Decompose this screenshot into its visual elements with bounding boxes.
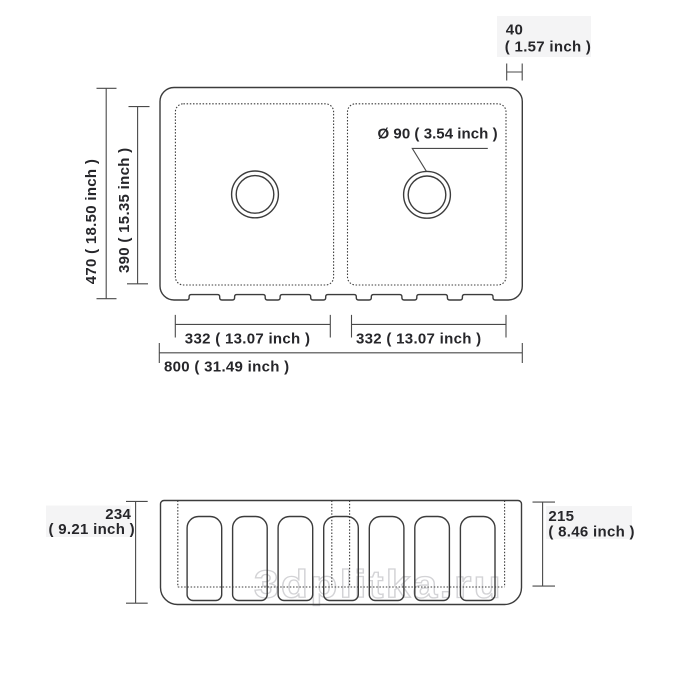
svg-text:800 ( 31.49 inch ): 800 ( 31.49 inch ) xyxy=(164,358,289,375)
svg-text:332 ( 13.07 inch ): 332 ( 13.07 inch ) xyxy=(356,331,481,348)
svg-text:470 ( 18.50 inch ): 470 ( 18.50 inch ) xyxy=(83,159,100,284)
svg-text:390 ( 15.35 inch ): 390 ( 15.35 inch ) xyxy=(116,148,133,273)
svg-text:( 1.57 inch ): ( 1.57 inch ) xyxy=(505,39,591,56)
svg-text:332 ( 13.07 inch ): 332 ( 13.07 inch ) xyxy=(185,331,310,348)
svg-text:40: 40 xyxy=(506,21,523,38)
svg-text:( 8.46 inch ): ( 8.46 inch ) xyxy=(548,524,634,541)
svg-text:215: 215 xyxy=(548,508,574,525)
svg-text:Ø 90 ( 3.54 inch ): Ø 90 ( 3.54 inch ) xyxy=(378,125,498,142)
svg-text:( 9.21 inch ): ( 9.21 inch ) xyxy=(49,521,135,538)
